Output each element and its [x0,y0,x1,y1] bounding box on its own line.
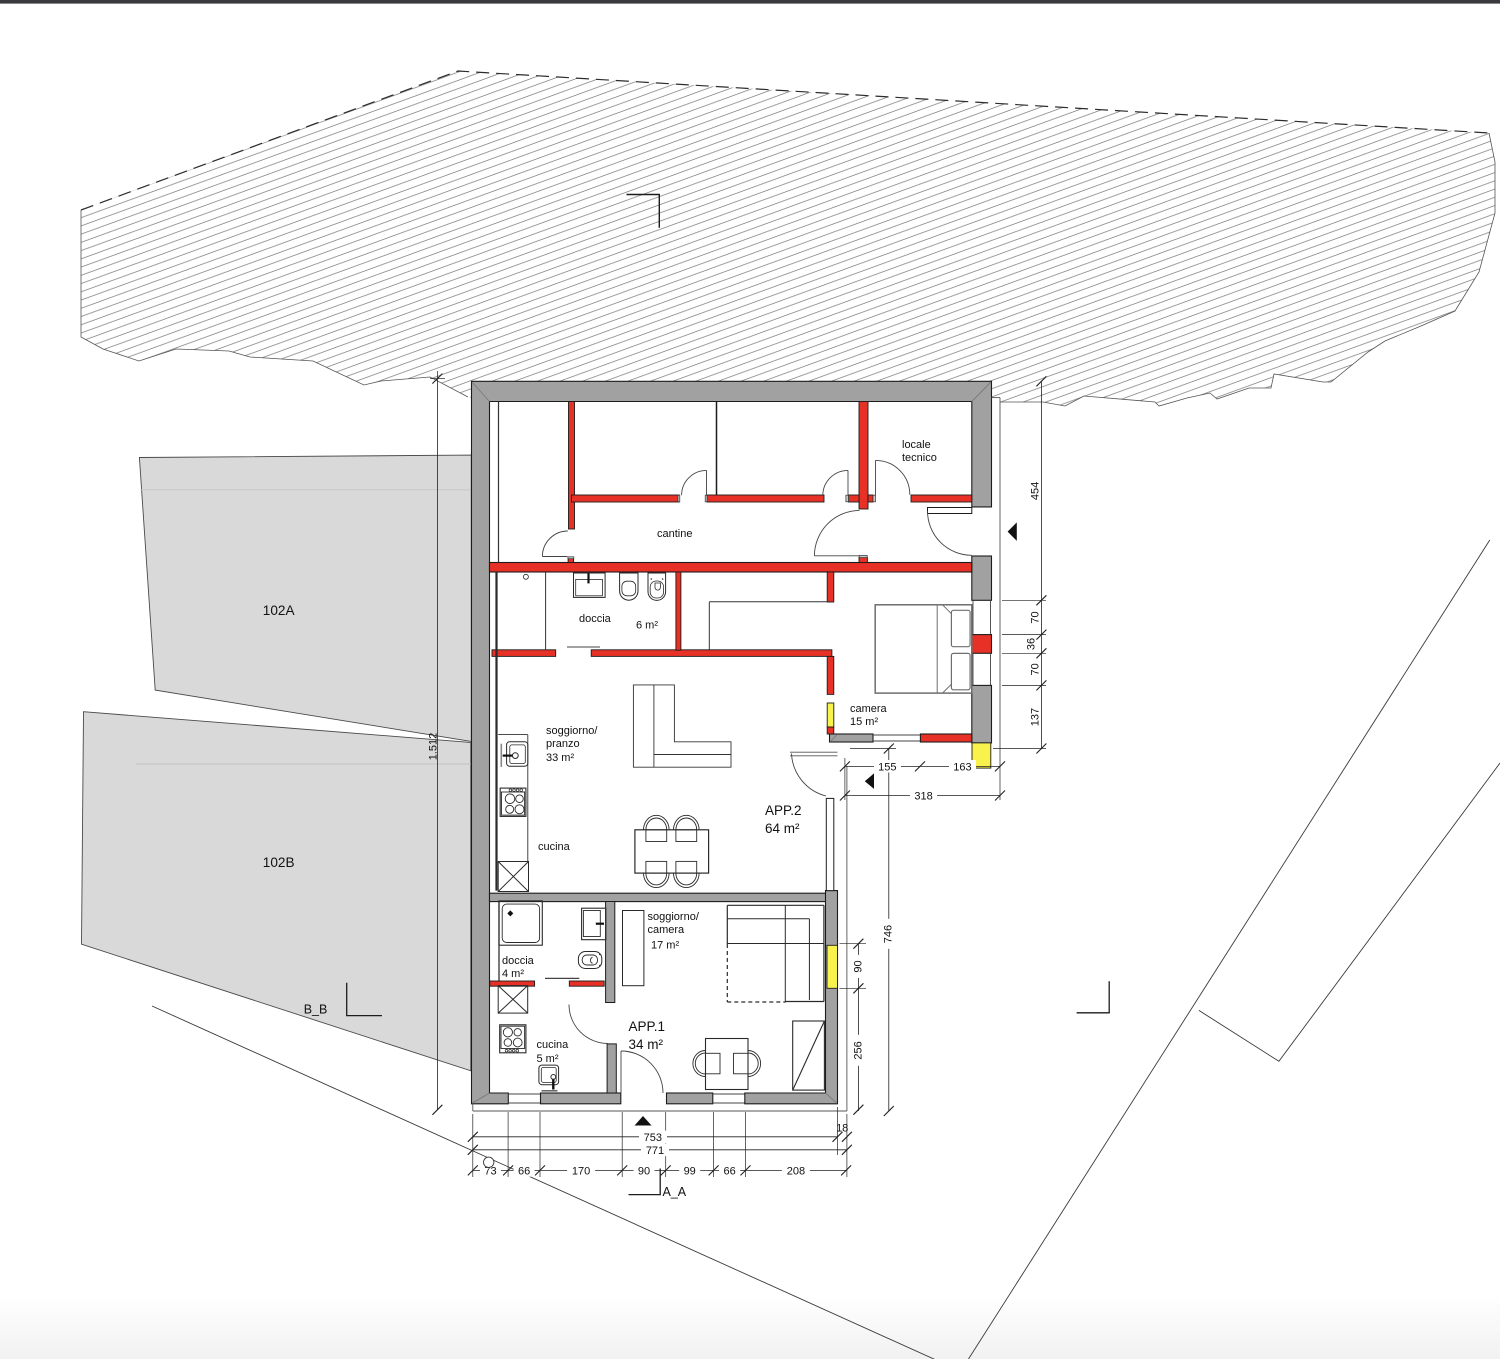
svg-text:64 m²: 64 m² [765,821,800,836]
svg-text:70: 70 [1029,611,1041,623]
svg-text:318: 318 [914,791,932,803]
svg-text:163: 163 [953,761,971,773]
svg-text:B_B: B_B [304,1002,328,1016]
svg-text:256: 256 [852,1041,864,1059]
svg-text:1.512: 1.512 [427,733,439,761]
svg-text:soggiorno/: soggiorno/ [648,911,700,923]
svg-text:cantine: cantine [657,528,692,540]
svg-text:36: 36 [1025,638,1037,650]
svg-text:90: 90 [638,1165,650,1177]
svg-text:66: 66 [518,1165,530,1177]
svg-text:90: 90 [852,960,864,972]
svg-text:454: 454 [1029,482,1041,500]
svg-text:137: 137 [1029,708,1041,726]
svg-text:APP.1: APP.1 [629,1019,666,1034]
svg-text:APP.2: APP.2 [765,803,802,818]
svg-text:102B: 102B [263,855,295,870]
svg-text:15 m²: 15 m² [850,716,878,728]
svg-text:170: 170 [572,1165,590,1177]
svg-text:cucina: cucina [537,1039,570,1051]
svg-text:753: 753 [644,1132,662,1144]
svg-text:70: 70 [1029,663,1041,675]
svg-text:cucina: cucina [538,841,571,853]
svg-text:746: 746 [883,925,895,943]
svg-text:4 m²: 4 m² [502,968,524,980]
svg-text:5 m²: 5 m² [537,1053,559,1065]
svg-text:18: 18 [836,1123,848,1135]
svg-text:17 m²: 17 m² [651,940,679,952]
svg-text:tecnico: tecnico [902,452,937,464]
svg-text:6 m²: 6 m² [636,620,658,632]
svg-text:66: 66 [723,1165,735,1177]
svg-text:155: 155 [878,761,896,773]
svg-text:camera: camera [850,703,888,715]
svg-text:pranzo: pranzo [546,738,580,750]
svg-text:99: 99 [684,1165,696,1177]
svg-text:doccia: doccia [502,955,535,967]
svg-text:208: 208 [787,1165,805,1177]
svg-text:camera: camera [648,924,686,936]
svg-text:34 m²: 34 m² [629,1037,664,1052]
svg-text:locale: locale [902,439,931,451]
svg-text:A_A: A_A [663,1185,687,1199]
svg-text:soggiorno/: soggiorno/ [546,725,598,737]
svg-text:771: 771 [646,1145,664,1157]
svg-text:doccia: doccia [579,613,612,625]
svg-text:33 m²: 33 m² [546,752,574,764]
svg-text:102A: 102A [263,603,296,618]
